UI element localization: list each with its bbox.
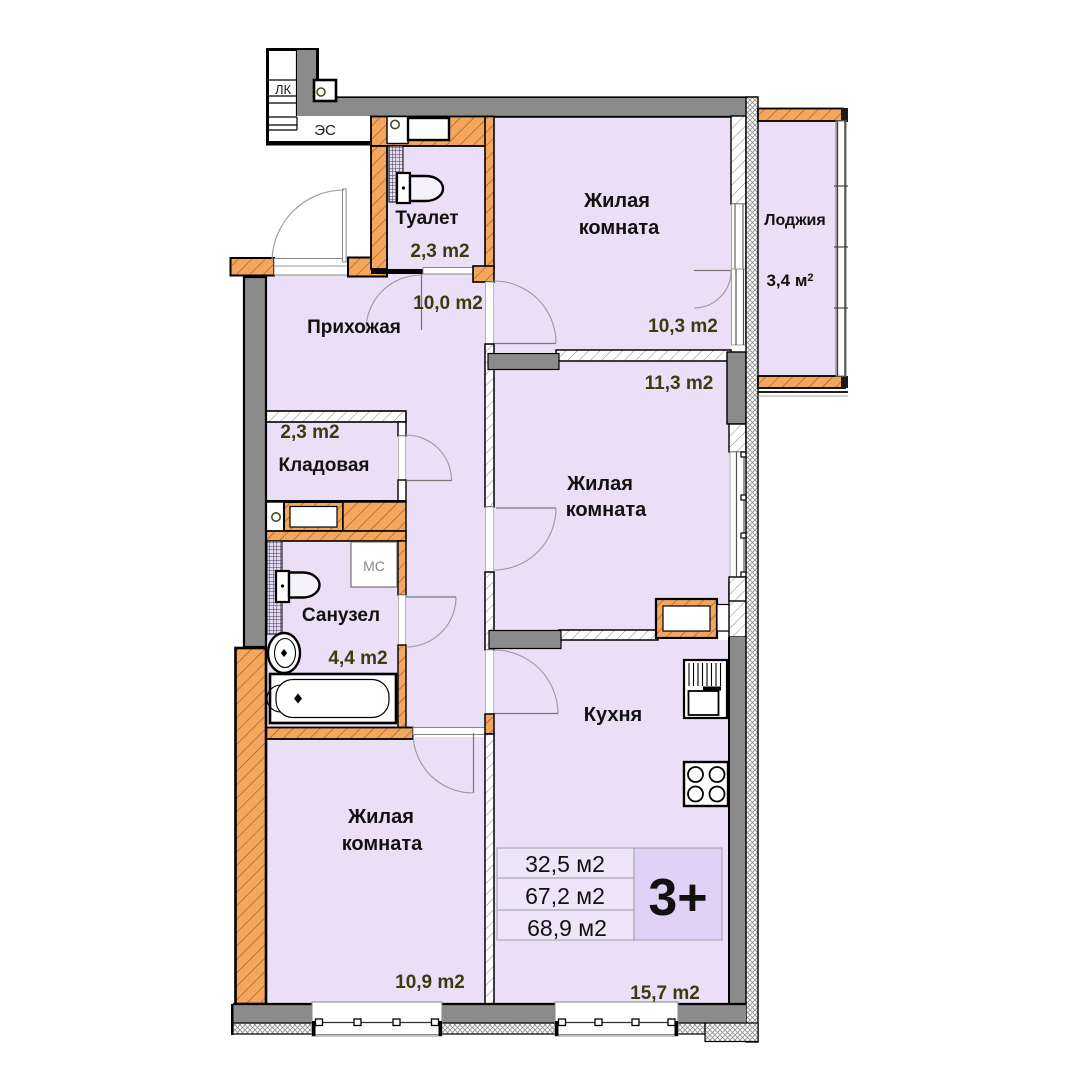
svg-text:Лоджия: Лоджия: [764, 212, 825, 229]
svg-text:Прихожая: Прихожая: [307, 317, 401, 338]
svg-text:комната: комната: [342, 833, 423, 855]
svg-text:3,4 м2: 3,4 м2: [766, 271, 813, 290]
svg-text:ЭС: ЭС: [314, 122, 336, 139]
svg-text:ЛК: ЛК: [275, 82, 292, 97]
svg-text:комната: комната: [566, 499, 647, 521]
svg-text:15,7 m2: 15,7 m2: [630, 983, 700, 1004]
svg-text:Жилая: Жилая: [347, 806, 414, 828]
svg-text:10,0 m2: 10,0 m2: [413, 293, 483, 314]
svg-text:67,2 м2: 67,2 м2: [525, 883, 605, 909]
svg-text:Кладовая: Кладовая: [279, 455, 370, 476]
svg-text:МС: МС: [363, 558, 385, 574]
svg-text:68,9 м2: 68,9 м2: [527, 915, 607, 941]
svg-text:Жилая: Жилая: [566, 473, 633, 495]
svg-text:Жилая: Жилая: [583, 190, 650, 212]
svg-text:10,3 m2: 10,3 m2: [648, 316, 718, 337]
svg-text:2,3 m2: 2,3 m2: [280, 422, 339, 443]
svg-text:Санузел: Санузел: [302, 605, 380, 626]
svg-text:11,3 m2: 11,3 m2: [645, 373, 714, 394]
svg-text:Туалет: Туалет: [395, 208, 458, 229]
svg-text:3+: 3+: [648, 869, 707, 927]
svg-text:комната: комната: [579, 217, 660, 239]
svg-text:10,9 m2: 10,9 m2: [395, 972, 465, 993]
svg-text:2,3 m2: 2,3 m2: [410, 241, 469, 262]
svg-text:4,4 m2: 4,4 m2: [328, 648, 387, 669]
svg-text:32,5 м2: 32,5 м2: [525, 851, 605, 877]
svg-text:Кухня: Кухня: [584, 704, 642, 726]
